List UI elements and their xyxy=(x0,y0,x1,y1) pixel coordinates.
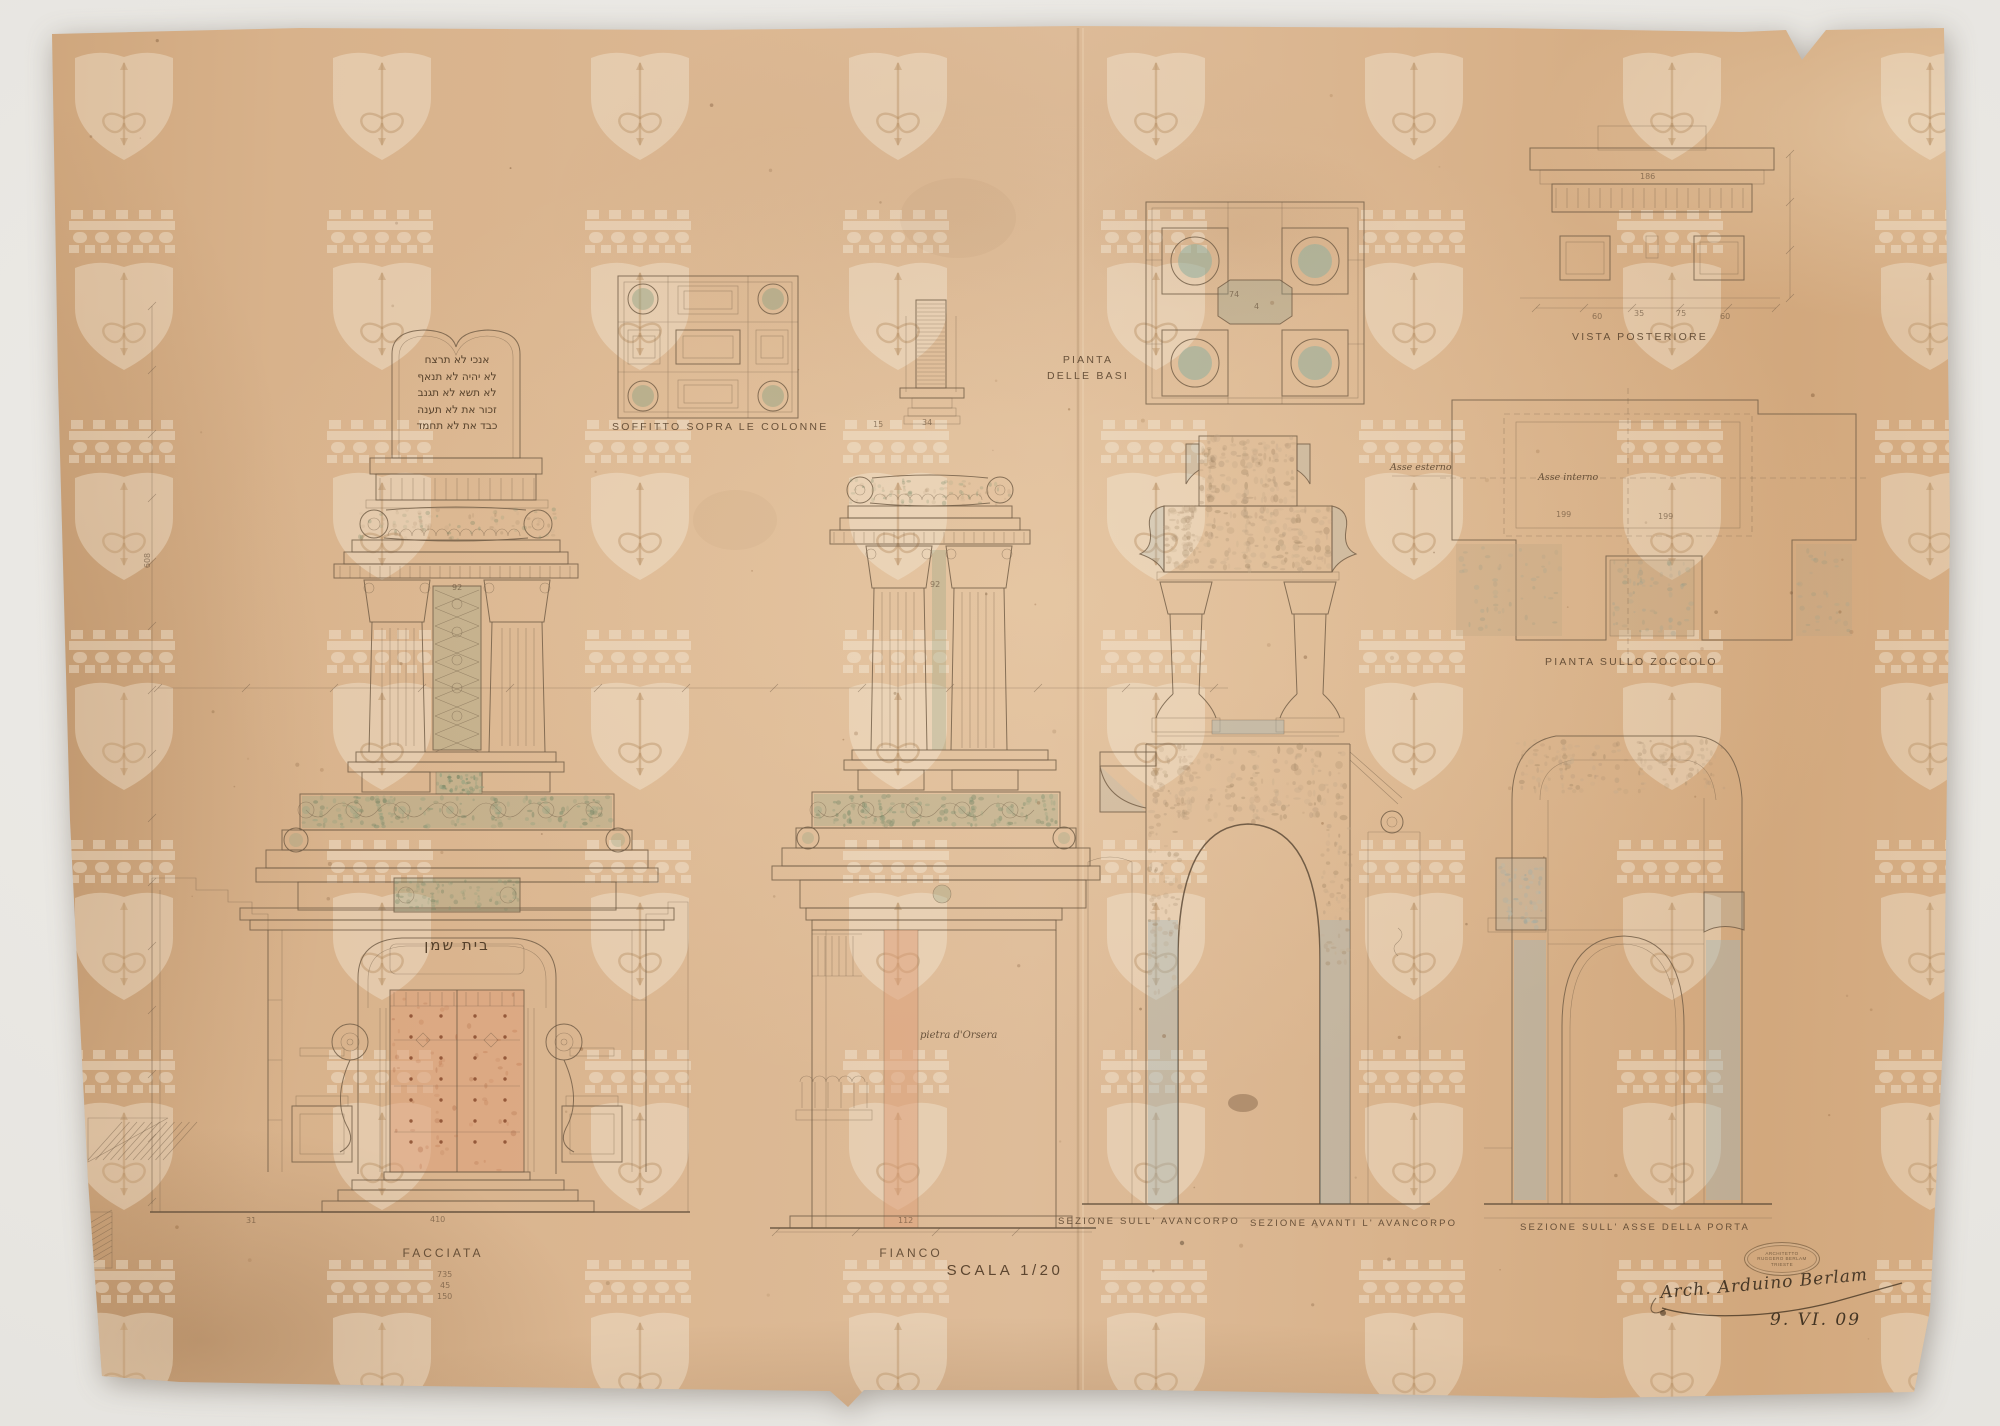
door-hebrew-inscription: בית שמן xyxy=(400,936,514,954)
dimension-note: 4 xyxy=(1254,302,1259,311)
dimension-note: 608 xyxy=(143,553,152,568)
door-axis-section-drawing xyxy=(1484,736,1772,1218)
dimension-note: 35 xyxy=(1634,309,1644,318)
scale-note: SCALA 1/20 xyxy=(935,1262,1075,1279)
scanned-drawing-viewport: SOFFITTO SOPRA LE COLONNE PIANTA DELLE B… xyxy=(0,0,2000,1426)
dimension-note: 31 xyxy=(246,1216,256,1225)
caption-sezione-avanti: SEZIONE AVANTI L' AVANCORPO xyxy=(1250,1218,1425,1229)
rear-view-drawing xyxy=(1520,126,1780,298)
dimension-note: 112 xyxy=(898,1216,913,1225)
tablets-hebrew-line: כבד את לא תחמד xyxy=(394,418,520,435)
caption-soffitto: SOFFITTO SOPRA LE COLONNE xyxy=(612,421,824,433)
drawing-date: 9. VI. 09 xyxy=(1770,1310,1861,1330)
dimension-note: 199 xyxy=(1556,510,1571,519)
tablets-hebrew-line: לא יהיה לא תנאף xyxy=(394,369,520,386)
dimension-note: 75 xyxy=(1676,309,1686,318)
socle-plan-drawing xyxy=(1392,388,1868,668)
dimension-note: 34 xyxy=(922,418,932,427)
drawing-sheet-svg xyxy=(0,0,2000,1426)
dimension-note: 45 xyxy=(440,1281,450,1290)
caption-fianco: FIANCO xyxy=(868,1246,954,1260)
dimension-note: 92 xyxy=(930,580,940,589)
dimension-note: 74 xyxy=(1229,290,1239,299)
tablets-hebrew-text: אנכי לא תרצחלא יהיה לא תנאףלא תשא לא תגנ… xyxy=(394,352,520,435)
caption-sezione-porta: SEZIONE SULL' ASSE DELLA PORTA xyxy=(1520,1222,1705,1233)
dimension-note: 199 xyxy=(1658,512,1673,521)
dimension-note: 150 xyxy=(437,1292,452,1301)
stamp-line-3: TRIESTE xyxy=(1771,1262,1793,1268)
axis-external-note: Asse esterno xyxy=(1390,462,1452,473)
caption-pianta-basi-2: DELLE BASI xyxy=(1032,370,1144,382)
tablets-hebrew-line: אנכי לא תרצח xyxy=(394,352,520,369)
caption-vista-posteriore: VISTA POSTERIORE xyxy=(1560,331,1720,343)
caption-facciata: FACCIATA xyxy=(385,1246,501,1260)
caption-sezione-avancorpo: SEZIONE SULL' AVANCORPO xyxy=(1058,1216,1218,1227)
dimension-note: 60 xyxy=(1592,312,1602,321)
caption-pianta-basi-1: PIANTA xyxy=(1040,354,1136,366)
facade-elevation-drawing xyxy=(150,330,690,1212)
material-note: pietra d'Orsera xyxy=(920,1030,997,1041)
tablets-hebrew-line: זכור את לא תענה xyxy=(394,402,520,419)
side-elevation-drawing xyxy=(770,300,1100,1228)
caption-pianta-zoccolo: PIANTA SULLO ZOCCOLO xyxy=(1545,656,1715,668)
dimension-note: 92 xyxy=(452,583,462,592)
dimension-note: 410 xyxy=(430,1215,445,1224)
dimension-note: 735 xyxy=(437,1270,452,1279)
dimension-note: 15 xyxy=(873,420,883,429)
dimension-note: 186 xyxy=(1640,172,1655,181)
drawing-sheet: SOFFITTO SOPRA LE COLONNE PIANTA DELLE B… xyxy=(0,0,2000,1426)
dimension-note: 60 xyxy=(1720,312,1730,321)
axis-internal-note: Asse interno xyxy=(1538,472,1598,483)
ceiling-plan-drawing xyxy=(618,276,798,418)
paper-shadow-wrap: SOFFITTO SOPRA LE COLONNE PIANTA DELLE B… xyxy=(0,0,2000,1426)
tablets-hebrew-line: לא תשא לא תגנב xyxy=(394,385,520,402)
